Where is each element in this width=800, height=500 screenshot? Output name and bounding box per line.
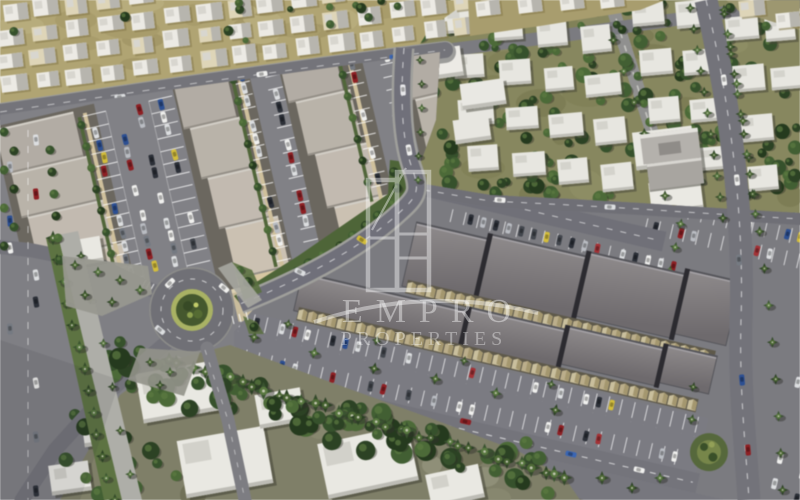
svg-text:PROPERTIES: PROPERTIES bbox=[341, 328, 508, 350]
svg-text:EMPRO: EMPRO bbox=[342, 293, 524, 330]
